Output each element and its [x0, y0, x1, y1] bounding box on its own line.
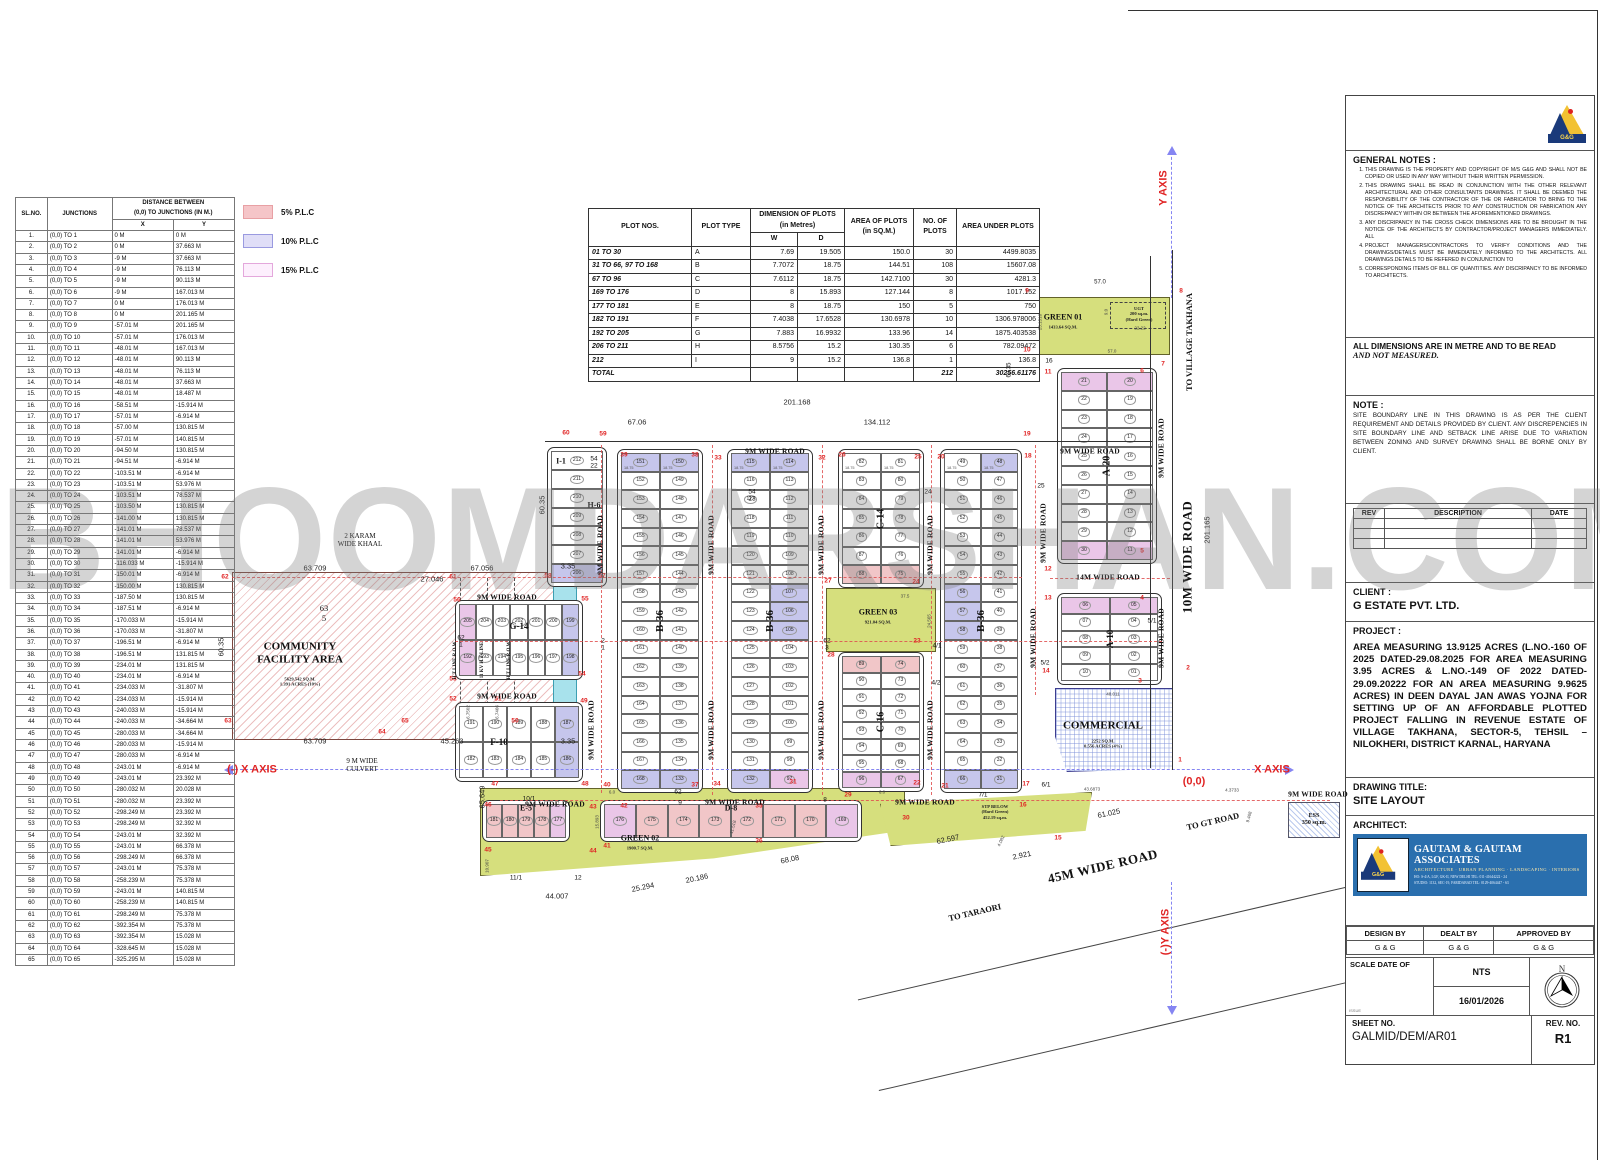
junction-cell: 45: [16, 728, 48, 739]
plot-number: 182: [464, 755, 478, 765]
plot-number: 04: [1128, 617, 1140, 627]
plot-block-B-36-1: 15118.7515018.75152149153148154147155146…: [617, 449, 703, 793]
junction-cell: -15.914 M: [173, 400, 234, 411]
plot-table-row: 212I915.2136.81136.8: [589, 354, 1040, 368]
plot-19: 19: [1107, 391, 1153, 410]
plot-table-cell: 9: [751, 354, 798, 368]
junction-cell: -57.01 M: [112, 411, 173, 422]
plot-table-cell: 136.8: [845, 354, 914, 368]
plot-36: 36: [981, 677, 1018, 696]
plot-number: 86: [856, 532, 868, 542]
junction-cell: 31.: [16, 570, 48, 581]
plot-128: 128: [731, 696, 770, 715]
junction-cell: 50: [16, 785, 48, 796]
plot-119: 119: [731, 528, 770, 547]
architect-logo-text: G&G: [1361, 872, 1395, 880]
junction-cell: -298.249 M: [112, 819, 173, 830]
rev-empty-cell: [1532, 539, 1587, 549]
junction-cell: -57.01 M: [112, 434, 173, 445]
plot-number: 176: [613, 816, 627, 826]
plot-number: 178: [535, 816, 549, 826]
plot-number: 43: [994, 551, 1006, 561]
junction-marker: 43: [589, 803, 596, 810]
plot-number: 45: [994, 514, 1006, 524]
junction-cell: (0,0) TO 42: [47, 694, 112, 705]
block-label: I-1: [556, 457, 566, 466]
plot-number: 150: [672, 458, 686, 468]
client-section: CLIENT : G ESTATE PVT. LTD.: [1346, 583, 1594, 622]
plot-52: 52: [944, 509, 981, 528]
road-label: 9M WIDE ROAD: [1288, 791, 1348, 800]
plot-69: 69: [881, 739, 920, 756]
junction-cell: -298.249 M: [112, 807, 173, 818]
junction-cell: 167.013 M: [173, 287, 234, 298]
plan-annotation: 201.168: [783, 399, 810, 408]
plot-32: 32: [981, 752, 1018, 771]
plot-number: 175: [644, 816, 658, 826]
junction-cell: 16.: [16, 400, 48, 411]
plot-56: 56: [944, 584, 981, 603]
junction-cell: -141.01 M: [112, 536, 173, 547]
plot-number: 77: [895, 532, 907, 542]
junction-marker: 58: [544, 572, 551, 579]
plot-171: 171: [763, 804, 795, 838]
plot-169: 169: [826, 804, 858, 838]
junction-cell: -298.249 M: [112, 853, 173, 864]
plot-table-row: 31 TO 66, 97 TO 168B7.707218.75144.51108…: [589, 260, 1040, 274]
junction-cell: -234.033 M: [112, 694, 173, 705]
plot-number: 143: [672, 588, 686, 598]
junction-marker: 50: [511, 717, 518, 724]
junction-cell: -6.914 M: [173, 604, 234, 615]
plot-number: 196: [529, 653, 543, 663]
road-label: 9M WIDE ROAD: [745, 448, 805, 457]
plot-42: 42: [981, 565, 1018, 584]
plot-152: 152: [621, 472, 660, 491]
plot-number: 167: [633, 756, 647, 766]
junction-cell: 52: [16, 807, 48, 818]
plot-dimension-table: PLOT NOS. PLOT TYPE DIMENSION OF PLOTS (…: [588, 208, 1040, 382]
junction-row: 11.(0,0) TO 11-48.01 M167.013 M: [16, 344, 235, 355]
plan-annotation: ESS 350 sq.m.: [1302, 813, 1326, 827]
junction-marker: 3: [1138, 677, 1142, 684]
junction-cell: -328.645 M: [112, 943, 173, 954]
junction-marker: 48: [581, 780, 588, 787]
plan-annotation: 24: [924, 488, 931, 495]
junction-row: 10.(0,0) TO 10-57.01 M176.013 M: [16, 332, 235, 343]
block-label: F-10: [490, 737, 508, 747]
junction-row: 65(0,0) TO 65-325.295 M15.028 M: [16, 954, 235, 965]
plot-154: 154: [621, 509, 660, 528]
junction-cell: -48.01 M: [112, 344, 173, 355]
plot-94: 94: [842, 739, 881, 756]
junction-row: 41.(0,0) TO 41-234.033 M-31.807 M: [16, 683, 235, 694]
plot-number: 205: [460, 617, 474, 627]
plot-number: 192: [460, 653, 474, 663]
junction-cell: (0,0) TO 47: [47, 751, 112, 762]
plot-number: 46: [994, 495, 1006, 505]
plot-table-cell: 18.75: [798, 300, 845, 314]
junction-cell: -6.914 M: [173, 751, 234, 762]
junction-marker: 15: [1054, 834, 1061, 841]
junction-marker: 11: [1045, 368, 1052, 375]
junction-cell: 56: [16, 853, 48, 864]
plot-table-cell: 19.505: [798, 246, 845, 260]
junction-cell: (0,0) TO 50: [47, 785, 112, 796]
plan-annotation: 11 KV H.T LINE: [480, 642, 486, 679]
plot-127: 127: [731, 677, 770, 696]
plot-170: 170: [795, 804, 827, 838]
junction-cell: -48.01 M: [112, 389, 173, 400]
plan-annotation: 12: [574, 874, 581, 881]
plot-140: 140: [660, 640, 699, 659]
design-by-value: G & G: [1347, 941, 1424, 955]
junction-cell: 10.: [16, 332, 48, 343]
plot-166: 166: [621, 733, 660, 752]
junction-cell: -392.354 M: [112, 932, 173, 943]
junction-cell: 140.815 M: [173, 434, 234, 445]
pt-header-dim: DIMENSION OF PLOTS (in Metres): [751, 209, 845, 233]
rev-empty-row: [1354, 539, 1587, 549]
plan-annotation: 1433.64 SQ.M.: [1049, 324, 1078, 329]
plot-number: 145: [672, 551, 686, 561]
junction-cell: 43: [16, 706, 48, 717]
plan-annotation: 20.186: [685, 872, 709, 885]
plot-13: 13: [1107, 504, 1153, 523]
junction-row: 31.(0,0) TO 31-150.01 M-6.914 M: [16, 570, 235, 581]
plot-number: 132: [743, 775, 757, 785]
plan-annotation: 5629.542 SQ.M. 1.391 ACRES (10%): [280, 677, 320, 688]
junction-cell: 14.: [16, 378, 48, 389]
junction-cell: 23.: [16, 479, 48, 490]
junction-cell: (0,0) TO 25: [47, 502, 112, 513]
junction-cell: -280.033 M: [112, 751, 173, 762]
junction-cell: 49: [16, 773, 48, 784]
plot-table-cell: 108: [914, 260, 957, 274]
plot-86: 86: [842, 528, 881, 547]
plot-table-row: 169 TO 176D815.893127.14481017.152: [589, 287, 1040, 301]
junction-row: 45(0,0) TO 45-280.033 M-34.664 M: [16, 728, 235, 739]
plot-180: 180: [502, 804, 518, 838]
junction-cell: 0 M: [112, 230, 173, 241]
plot-table-cell: 18.75: [798, 260, 845, 274]
plot-number: 184: [512, 755, 526, 765]
plot-number: 131: [743, 756, 757, 766]
junction-marker: 60: [562, 429, 569, 436]
plan-annotation: 60.35: [218, 638, 227, 657]
plot-47: 47: [981, 472, 1018, 491]
junction-cell: (0,0) TO 22: [47, 468, 112, 479]
design-by-label: DESIGN BY: [1347, 927, 1424, 941]
plot-number: 80: [895, 476, 907, 486]
plot-table-cell: 16.9932: [798, 327, 845, 341]
junction-marker: 38: [691, 451, 698, 458]
scale-value: NTS: [1434, 958, 1529, 987]
plot-23: 23: [1061, 410, 1107, 429]
plot-33: 33: [981, 733, 1018, 752]
rev-empty-cell: [1354, 519, 1385, 529]
rev-no-label: REV. NO.: [1536, 1019, 1590, 1028]
junction-row: 21.(0,0) TO 21-94.51 M-6.914 M: [16, 457, 235, 468]
legend-swatch-10plc: [243, 234, 273, 248]
junction-cell: 25.: [16, 502, 48, 513]
junction-cell: -187.50 M: [112, 592, 173, 603]
plot-number: 179: [519, 816, 533, 826]
junction-cell: 0 M: [173, 230, 234, 241]
plot-table-cell: 182 TO 191: [589, 314, 692, 328]
junction-cell: -9 M: [112, 264, 173, 275]
road-label: 9M WIDE ROAD: [588, 700, 597, 760]
junction-cell: 24.: [16, 491, 48, 502]
plot-number: 57: [957, 607, 969, 617]
plot-table-cell: 8: [751, 300, 798, 314]
block-label: G-14: [510, 621, 529, 631]
plot-number: 211: [570, 475, 584, 485]
junction-cell: 130.815 M: [173, 592, 234, 603]
plan-annotation: 9 M WIDE CULVERT: [346, 757, 377, 773]
plot-116: 116: [731, 472, 770, 491]
approved-by-label: APPROVED BY: [1494, 927, 1594, 941]
plot-table-cell: 18.75: [798, 273, 845, 287]
plot-number: 134: [672, 756, 686, 766]
jt-header-x: X: [112, 219, 173, 230]
junction-cell: 78.537 M: [173, 491, 234, 502]
pt-header-w: W: [751, 233, 798, 247]
legend-swatch-15plc: [243, 263, 273, 277]
plan-annotation: H.T LINE R.O.W.: [507, 641, 513, 680]
junction-marker: 22: [913, 779, 920, 786]
junction-marker: 24: [912, 578, 919, 585]
plot-number: 49: [957, 458, 969, 468]
junction-cell: (0,0) TO 56: [47, 853, 112, 864]
plot-number: 201: [529, 617, 543, 627]
plot-number: 151: [633, 458, 647, 468]
junction-cell: 90.113 M: [173, 276, 234, 287]
plot-table-cell: C: [692, 273, 751, 287]
junction-marker: 52: [449, 695, 456, 702]
plot-number: 140: [672, 644, 686, 654]
note-title: NOTE :: [1353, 400, 1587, 410]
plot-156: 156: [621, 546, 660, 565]
plan-annotation: 54 22: [590, 456, 597, 471]
plot-number: 141: [672, 626, 686, 636]
junction-row: 1.(0,0) TO 10 M0 M: [16, 230, 235, 241]
plot-number: 32: [994, 756, 1006, 766]
plot-number: 48: [994, 458, 1006, 468]
junction-cell: 8.: [16, 310, 48, 321]
junction-cell: 130.815 M: [173, 423, 234, 434]
junction-cell: -392.354 M: [112, 921, 173, 932]
plot-number: 44: [994, 532, 1006, 542]
junction-cell: -150.00 M: [112, 581, 173, 592]
plot-number: 199: [563, 617, 577, 627]
plot-number: 78: [895, 514, 907, 524]
junction-cell: 39.: [16, 660, 48, 671]
junction-cell: (0,0) TO 13: [47, 366, 112, 377]
plot-table-cell: 31 TO 66, 97 TO 168: [589, 260, 692, 274]
junction-cell: 15.028 M: [173, 954, 234, 965]
junction-cell: (0,0) TO 49: [47, 773, 112, 784]
plot-number: 90: [856, 676, 868, 686]
junction-marker: 28: [827, 651, 834, 658]
plot-block-C-16: 89749073917292719370946995689667C-16: [838, 652, 924, 792]
plot-61: 61: [944, 677, 981, 696]
plot-table-cell: B: [692, 260, 751, 274]
plot-196: 196: [528, 640, 545, 676]
junction-cell: -6.914 M: [173, 547, 234, 558]
junction-cell: -6.914 M: [173, 468, 234, 479]
junction-marker: 63: [224, 717, 231, 724]
pt-total-plots: 212: [914, 368, 957, 382]
junction-cell: (0,0) TO 11: [47, 344, 112, 355]
plot-number: 105: [782, 626, 796, 636]
junction-cell: 66.378 M: [173, 841, 234, 852]
junction-cell: 53.976 M: [173, 536, 234, 547]
plot-112: 112: [770, 490, 809, 509]
plot-number: 69: [895, 742, 907, 752]
road-label: 9M WIDE ROAD: [525, 801, 585, 810]
plan-annotation: 63.709: [304, 565, 327, 574]
junction-cell: 36.: [16, 626, 48, 637]
plot-number: 172: [740, 816, 754, 826]
junction-row: 42(0,0) TO 42-234.033 M-15.914 M: [16, 694, 235, 705]
plot-table-cell: 7.4038: [751, 314, 798, 328]
plot-71: 71: [881, 706, 920, 723]
plot-99: 99: [770, 733, 809, 752]
plan-annotation: 61.025: [1097, 807, 1121, 820]
junction-row: 2.(0,0) TO 20 M37.663 M: [16, 242, 235, 253]
plot-number: 147: [672, 514, 686, 524]
junction-marker: 30: [902, 814, 909, 821]
road-label: 9M WIDE ROAD: [477, 594, 537, 603]
plot-number: 62: [957, 700, 969, 710]
plot-number: 20: [1124, 377, 1136, 387]
plot-48: 4818.75: [981, 453, 1018, 472]
plot-87: 87: [842, 547, 881, 566]
rev-empty-cell: [1532, 519, 1587, 529]
junction-cell: (0,0) TO 39: [47, 660, 112, 671]
plot-number: 168: [633, 775, 647, 785]
plot-111: 111: [770, 509, 809, 528]
junction-row: 55(0,0) TO 55-243.01 M66.378 M: [16, 841, 235, 852]
plot-number: 100: [782, 719, 796, 729]
plot-number: 153: [633, 495, 647, 505]
junction-cell: -34.664 M: [173, 728, 234, 739]
junction-cell: 130.815 M: [173, 581, 234, 592]
plot-number: 139: [672, 663, 686, 673]
plot-number: 149: [672, 476, 686, 486]
boundary-line: [1128, 10, 1598, 11]
plot-number: 113: [783, 476, 797, 486]
plot-number: 99: [784, 738, 796, 748]
junction-row: 36.(0,0) TO 36-170.033 M-31.807 M: [16, 626, 235, 637]
plot-number: 116: [744, 476, 758, 486]
plot-134: 134: [660, 752, 699, 771]
plot-number: 208: [570, 531, 584, 541]
junction-cell: (0,0) TO 19: [47, 434, 112, 445]
plot-number: 38: [994, 644, 1006, 654]
junction-cell: (0,0) TO 26: [47, 513, 112, 524]
junction-cell: -243.01 M: [112, 864, 173, 875]
plot-number: 39: [994, 626, 1006, 636]
plot-number: 73: [895, 676, 907, 686]
junction-marker: 16: [1019, 801, 1026, 808]
road-label: 9M WIDE ROAD: [927, 700, 936, 760]
plot-number: 195: [512, 653, 526, 663]
junction-cell: (0,0) TO 59: [47, 887, 112, 898]
junction-cell: (0,0) TO 14: [47, 378, 112, 389]
plot-59: 59: [944, 640, 981, 659]
junction-cell: 26.: [16, 513, 48, 524]
plot-number: 164: [633, 700, 647, 710]
plot-125: 125: [731, 640, 770, 659]
plot-number: 174: [676, 816, 690, 826]
junction-marker: 42: [620, 802, 627, 809]
plot-number: 37: [994, 663, 1006, 673]
dimension-note-line2: AND NOT MEASURED.: [1353, 351, 1587, 360]
pt-header-count: NO. OF PLOTS: [914, 209, 957, 247]
plan-annotation: 16: [1045, 357, 1052, 364]
junction-cell: 3.: [16, 253, 48, 264]
plot-139: 139: [660, 658, 699, 677]
pt-total-row: TOTAL 212 30256.61176: [589, 368, 1040, 382]
plot-153: 153: [621, 490, 660, 509]
junction-cell: 0 M: [112, 310, 173, 321]
plot-number: 94: [856, 742, 868, 752]
plot-number: 198: [563, 653, 577, 663]
junction-row: 59(0,0) TO 59-243.01 M140.815 M: [16, 887, 235, 898]
plot-73: 73: [881, 673, 920, 690]
junction-cell: -280.032 M: [112, 785, 173, 796]
legend-label-10plc: 10% P.L.C: [281, 237, 319, 246]
plot-number: 118: [744, 514, 758, 524]
plot-table-cell: 30: [914, 246, 957, 260]
block-label: B-36: [764, 610, 776, 632]
plot-number: 02: [1128, 651, 1140, 661]
junction-cell: 13.: [16, 366, 48, 377]
junction-cell: -6.914 M: [173, 457, 234, 468]
plot-07: 07: [1061, 614, 1110, 631]
plan-annotation: 45.263: [441, 738, 464, 747]
plot-number: 130: [743, 738, 757, 748]
junction-cell: -141.00 M: [112, 513, 173, 524]
road-label: 9M WIDE ROAD: [708, 515, 717, 575]
plot-44: 44: [981, 528, 1018, 547]
plot-table-cell: I: [692, 354, 751, 368]
junction-cell: -141.01 M: [112, 547, 173, 558]
plot-41: 41: [981, 584, 1018, 603]
plot-101: 101: [770, 696, 809, 715]
junction-cell: -15.914 M: [173, 615, 234, 626]
plot-table-cell: 130.6978: [845, 314, 914, 328]
plot-49: 4918.75: [944, 453, 981, 472]
plot-14: 14: [1107, 485, 1153, 504]
plot-45: 45: [981, 509, 1018, 528]
plot-number: 82: [856, 458, 868, 468]
plot-table-cell: 130.35: [845, 341, 914, 355]
junction-cell: 130.815 M: [173, 513, 234, 524]
plot-table-cell: 6: [914, 341, 957, 355]
junction-row: 22.(0,0) TO 22-103.51 M-6.914 M: [16, 468, 235, 479]
general-note-item: PROJECT MANAGERS/CONTRACTORS TO VERIFY C…: [1365, 243, 1587, 264]
junction-marker: 61: [449, 573, 456, 580]
junction-cell: 12.: [16, 355, 48, 366]
plot-163: 163: [621, 677, 660, 696]
drawing-title-label: DRAWING TITLE:: [1353, 782, 1587, 792]
axis-label: Y AXIS: [1158, 170, 1171, 205]
plot-110: 110: [770, 528, 809, 547]
general-note-item: ANY DISCRIPANCY IN THE CROSS CHECK DIMEN…: [1365, 220, 1587, 241]
